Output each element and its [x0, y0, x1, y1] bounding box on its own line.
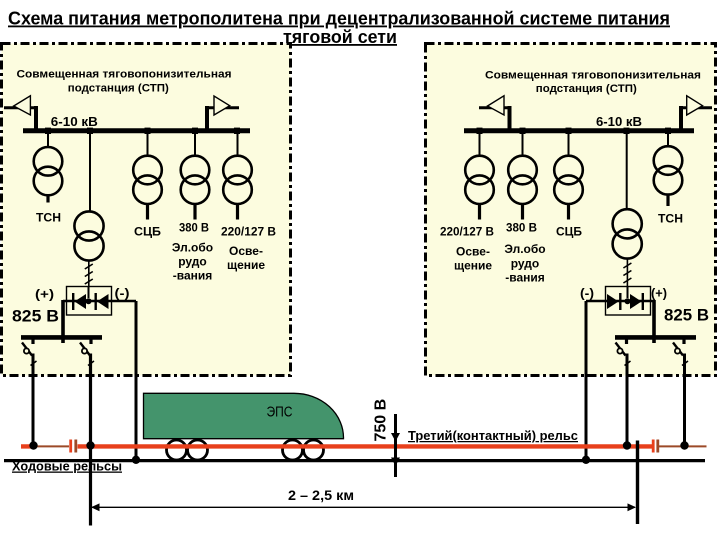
svg-text:щение: щение: [227, 258, 265, 272]
svg-text:825 В: 825 В: [664, 307, 709, 325]
svg-text:Эл.обо: Эл.обо: [172, 241, 213, 255]
svg-text:рудо: рудо: [511, 257, 540, 271]
svg-text:380 В: 380 В: [506, 221, 537, 235]
svg-text:(-): (-): [115, 287, 130, 301]
svg-text:220/127 В: 220/127 В: [440, 225, 494, 239]
svg-text:Совмещенная тяговопонизительна: Совмещенная тяговопонизительная: [17, 69, 232, 81]
svg-text:Эл.обо: Эл.обо: [504, 242, 545, 256]
svg-text:-вания: -вания: [173, 269, 213, 283]
svg-text:(+): (+): [35, 288, 54, 302]
svg-text:подстанция (СТП): подстанция (СТП): [68, 83, 169, 95]
svg-text:6-10 кВ: 6-10 кВ: [596, 114, 642, 129]
svg-text:220/127 В: 220/127 В: [221, 225, 276, 239]
svg-text:ЭПС: ЭПС: [267, 405, 293, 421]
svg-text:Осве-: Осве-: [456, 245, 490, 259]
svg-text:рудо: рудо: [178, 255, 207, 269]
svg-text:ТСН: ТСН: [658, 212, 683, 226]
svg-text:(-): (-): [580, 287, 594, 301]
svg-text:Ходовые рельсы: Ходовые рельсы: [12, 459, 122, 474]
svg-text:Осве-: Осве-: [229, 244, 263, 258]
svg-text:Совмещенная тяговопонизительна: Совмещенная тяговопонизительная: [485, 70, 701, 82]
svg-text:-вания: -вания: [505, 271, 545, 285]
svg-text:750 В: 750 В: [373, 399, 390, 442]
svg-text:380 В: 380 В: [179, 221, 209, 235]
svg-text:2 – 2,5 км: 2 – 2,5 км: [288, 487, 354, 503]
svg-text:825 В: 825 В: [12, 308, 59, 326]
svg-text:подстанция (СТП): подстанция (СТП): [536, 83, 637, 95]
svg-text:СЦБ: СЦБ: [134, 225, 161, 239]
svg-text:ТСН: ТСН: [36, 211, 61, 225]
svg-text:щение: щение: [454, 259, 492, 273]
svg-text:тяговой сети: тяговой сети: [283, 27, 397, 47]
svg-text:Третий(контактный) рельс: Третий(контактный) рельс: [408, 429, 578, 443]
svg-text:(+): (+): [651, 287, 667, 301]
svg-text:6-10 кВ: 6-10 кВ: [51, 114, 98, 129]
svg-text:СЦБ: СЦБ: [556, 225, 582, 239]
svg-text:Схема питания метрополитена пр: Схема питания метрополитена при децентра…: [8, 9, 670, 29]
